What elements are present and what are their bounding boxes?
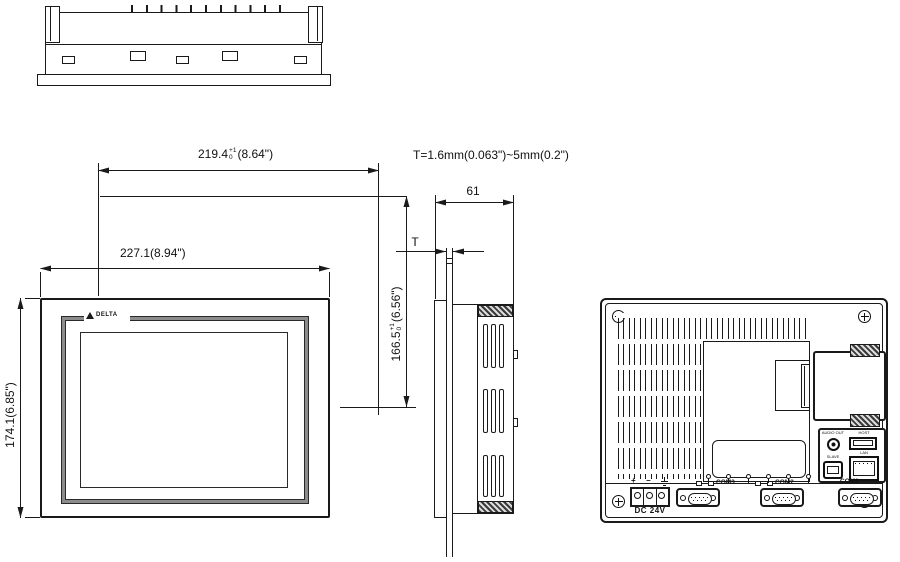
dim-depth-label: 61: [459, 184, 487, 198]
dim-cutout-height-graphics: [404, 196, 410, 407]
cutout-extension-graphics: [100, 197, 416, 408]
dim-depth-graphics: [435, 195, 514, 304]
dim-bezel-height-graphics: [18, 298, 41, 518]
dim-cutout-width-label: 219.4 +1 0 (8.64"): [198, 147, 273, 161]
thickness-symbol-label: T: [408, 235, 422, 249]
cutout-height-tolerance: +1 0: [389, 323, 403, 330]
cutout-height-mm: 166.5: [389, 332, 403, 362]
thickness-note-label: T=1.6mm(0.063")~5mm(0.2"): [413, 148, 569, 162]
cutout-width-inch: (8.64"): [237, 147, 273, 161]
cutout-width-tolerance: +1 0: [229, 147, 236, 161]
dim-bezel-height-label: 174.1(6.85"): [3, 357, 17, 473]
dim-cutout-width-graphics: [98, 163, 379, 415]
cutout-width-mm: 219.4: [198, 147, 228, 161]
dimensional-drawing-canvas: DELTA: [0, 0, 900, 562]
cutout-height-inch: (6.56"): [389, 286, 403, 322]
dim-cutout-height-label: 166.5 +1 0 (6.56"): [389, 259, 403, 389]
thickness-leader-graphics: [396, 249, 484, 255]
dim-bezel-width-graphics: [40, 266, 330, 298]
dimension-lines-overlay: [0, 0, 900, 562]
dim-bezel-width-label: 227.1(8.94"): [120, 246, 186, 260]
